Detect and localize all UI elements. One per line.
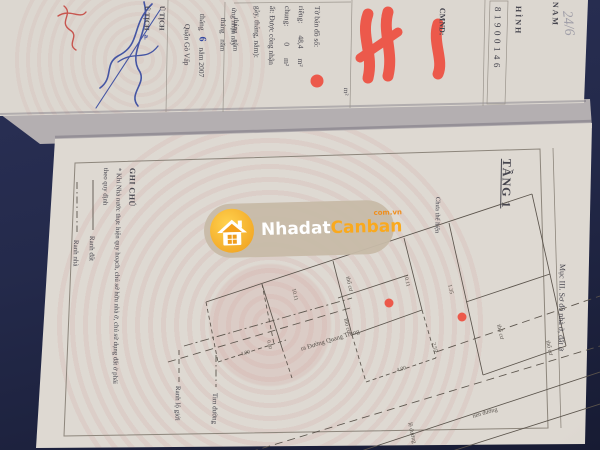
area-unit: m² bbox=[296, 58, 305, 66]
red-redaction-marks bbox=[311, 12, 467, 322]
house-icon bbox=[208, 207, 255, 254]
watermark-brand-primary: Nhadat bbox=[261, 218, 331, 240]
watermark-brand-secondary: Canban bbox=[330, 216, 402, 238]
pencil-handwriting: 24/6 bbox=[558, 10, 577, 36]
legend-land-boundary: Ranh đất bbox=[88, 236, 96, 261]
road-corridor-lines bbox=[168, 296, 600, 450]
issue-date-prefix: tháng bbox=[198, 14, 207, 31]
red-stamp-script bbox=[58, 6, 86, 50]
id-card-label: CMND: bbox=[438, 8, 447, 36]
chairman-fragment-1: Ủ TỊCH bbox=[158, 6, 166, 31]
issue-date-suffix: năm 2007 bbox=[197, 47, 207, 77]
road-edge-line bbox=[340, 372, 600, 450]
section-heading: Mục III. Sơ đồ nhà ở, đất ở bbox=[556, 264, 567, 351]
document-photo: NAM HÌNH 81900146 24/6 CMND: Tờ bản đồ s… bbox=[0, 0, 600, 450]
month-year-row-2: tháng năm bbox=[218, 18, 227, 51]
house-number-redaction-2 bbox=[458, 313, 467, 322]
watermark-domain: com.vn bbox=[373, 209, 402, 217]
area-unit: m² bbox=[282, 58, 291, 66]
nhadatcanban-watermark: NhadatCanban com.vn bbox=[203, 200, 394, 259]
floor-label: TẦNG 1 bbox=[498, 159, 514, 209]
handwritten-day: 6 bbox=[197, 36, 208, 41]
serial-number: 81900146 bbox=[492, 7, 503, 71]
legend-road-center: Tim đường bbox=[210, 393, 219, 424]
page-edge-shadows bbox=[0, 101, 592, 137]
area-private-value: 48,4 bbox=[296, 35, 305, 48]
form-cell-borders bbox=[166, 0, 508, 112]
chairman-text: Ủ TỊCH bbox=[143, 6, 151, 31]
area-shared-value: 0 bbox=[282, 42, 291, 46]
plan-frame bbox=[64, 148, 561, 436]
tenure-fragment: ất: Được công nhận bbox=[267, 6, 277, 65]
district-label: Quận Gò Vấp bbox=[182, 24, 192, 66]
area-shared-row: chung:0m² bbox=[282, 6, 292, 66]
not-shown-label: Chưa thể hiện bbox=[433, 197, 441, 234]
date-fragment: gày, tháng, năm): bbox=[252, 6, 262, 58]
chairman-fragment-2: Ủ TỊCHa. bbox=[142, 6, 151, 40]
area-unit-extra: m² bbox=[342, 88, 350, 96]
legend-line-samples bbox=[77, 180, 216, 387]
title-fragment: HÌNH bbox=[513, 6, 523, 35]
house-number-redaction-1 bbox=[385, 299, 394, 308]
legend-road-corridor: Ranh lộ giới bbox=[173, 386, 182, 421]
signature-mark: a. bbox=[142, 34, 150, 39]
issue-date-row: tháng6năm 2007 bbox=[196, 14, 208, 78]
legend-house-boundary: Ranh nhà bbox=[72, 240, 80, 267]
notes-title: GHI CHÚ bbox=[127, 168, 137, 207]
area-private-label: riêng: bbox=[297, 6, 306, 24]
area-private-row: riêng:48,4m² bbox=[296, 6, 306, 67]
map-sheet-label: Tờ bản đồ số: bbox=[312, 6, 322, 47]
watermark-brand: NhadatCanban com.vn bbox=[261, 218, 403, 239]
area-shared-label: chung: bbox=[283, 6, 292, 27]
notes-line-2: theo quy định bbox=[101, 168, 109, 206]
issue-column-header: ứng nhận này bbox=[229, 8, 238, 46]
